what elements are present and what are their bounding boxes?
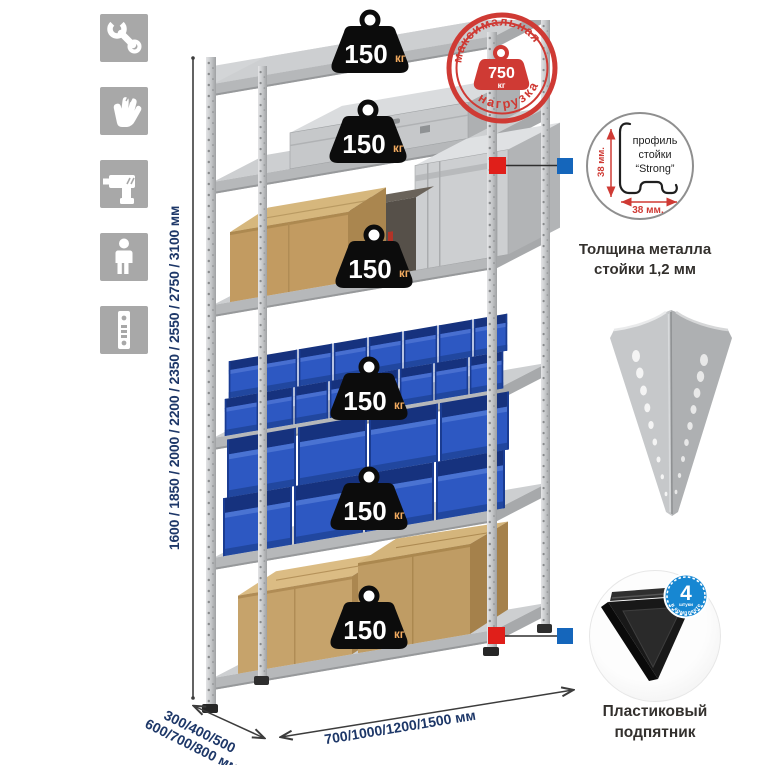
- load-unit: кг: [394, 510, 405, 522]
- shelf-load-badge-2: 150 кг: [320, 99, 416, 167]
- height-dimension-label: 1600 / 1850 / 2000 / 2200 / 2350 / 2550 …: [166, 206, 182, 550]
- stamp-unit: кг: [498, 80, 506, 90]
- profile-caption-line2: стойки 1,2 мм: [575, 260, 715, 280]
- product-infographic: 1600 / 1850 / 2000 / 2200 / 2350 / 2550 …: [0, 0, 765, 765]
- load-value: 150: [344, 39, 387, 69]
- foot-count-badge: 4 штуки в комплекте: [663, 573, 709, 619]
- post-strip-icon: [100, 306, 148, 354]
- load-value: 150: [343, 496, 386, 526]
- load-unit: кг: [394, 629, 405, 641]
- shelf-load-badge-4: 150 кг: [321, 356, 417, 424]
- shelf-load-badge-5: 150 кг: [321, 466, 417, 534]
- profile-label-3: “Strong”: [635, 163, 674, 175]
- foot-callout-connector: [488, 627, 573, 644]
- shelf-load-badge-1: 150 кг: [322, 9, 418, 77]
- profile-caption-line1: Толщина металла: [575, 240, 715, 260]
- person-icon: [100, 233, 148, 281]
- shelf-load-badge-6: 150 кг: [321, 585, 417, 653]
- gloves-icon: [100, 87, 148, 135]
- load-value: 150: [343, 615, 386, 645]
- rack-post-front-left: [202, 57, 218, 713]
- foot-caption-line2: подпятник: [585, 722, 725, 743]
- profile-dim-horizontal: 38 мм.: [632, 205, 664, 216]
- load-value: 150: [343, 386, 386, 416]
- profile-label-1: профиль: [633, 135, 678, 147]
- svg-text:максимальная: максимальная: [444, 10, 545, 67]
- stamp-arc-top: максимальная: [444, 10, 545, 67]
- profile-dim-vertical: 38 мм.: [596, 147, 607, 177]
- load-unit: кг: [399, 268, 410, 280]
- max-load-stamp: максимальная нагрузка 750 кг: [444, 10, 560, 126]
- load-unit: кг: [394, 400, 405, 412]
- foot-caption: Пластиковый подпятник: [585, 701, 725, 743]
- load-value: 150: [348, 254, 391, 284]
- profile-label-2: стойки: [638, 149, 671, 161]
- load-unit: кг: [393, 143, 404, 155]
- wrench-icon: [100, 14, 148, 62]
- load-value: 150: [342, 129, 385, 159]
- drill-icon: [100, 160, 148, 208]
- load-unit: кг: [395, 53, 406, 65]
- post-profile-image: [596, 302, 746, 527]
- profile-caption: Толщина металла стойки 1,2 мм: [575, 240, 715, 280]
- profile-detail-circle: 38 мм. 38 мм. профиль стойки “Strong”: [585, 111, 695, 221]
- shelf-load-badge-3: 150 кг: [326, 224, 422, 292]
- badge-small-label: штуки: [679, 602, 693, 607]
- foot-caption-line1: Пластиковый: [585, 701, 725, 722]
